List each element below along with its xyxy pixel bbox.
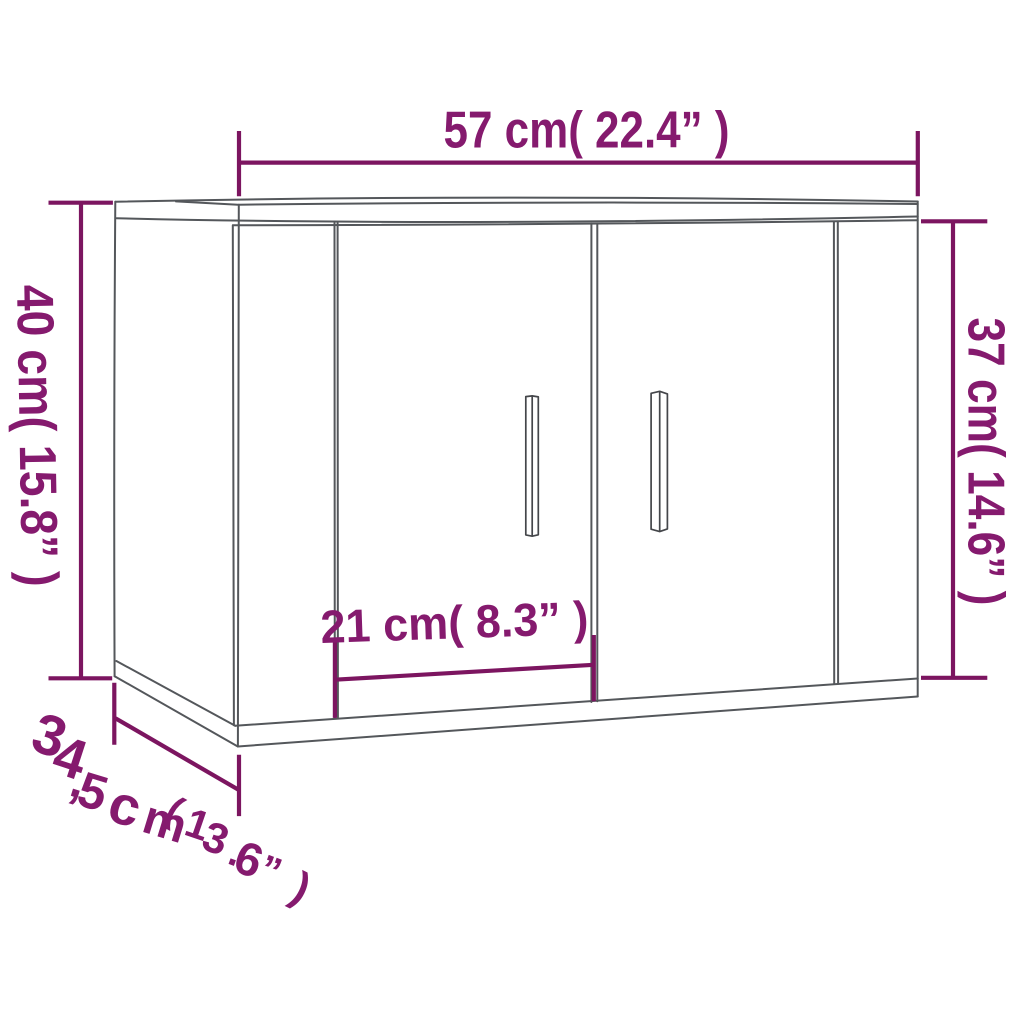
- svg-text:40 cm( 15.8” ): 40 cm( 15.8” ): [5, 284, 68, 587]
- svg-text:37 cm( 14.6” ): 37 cm( 14.6” ): [958, 318, 1016, 606]
- svg-text:21 cm( 8.3” ): 21 cm( 8.3” ): [320, 592, 590, 653]
- svg-text:57 cm( 22.4” ): 57 cm( 22.4” ): [444, 101, 730, 159]
